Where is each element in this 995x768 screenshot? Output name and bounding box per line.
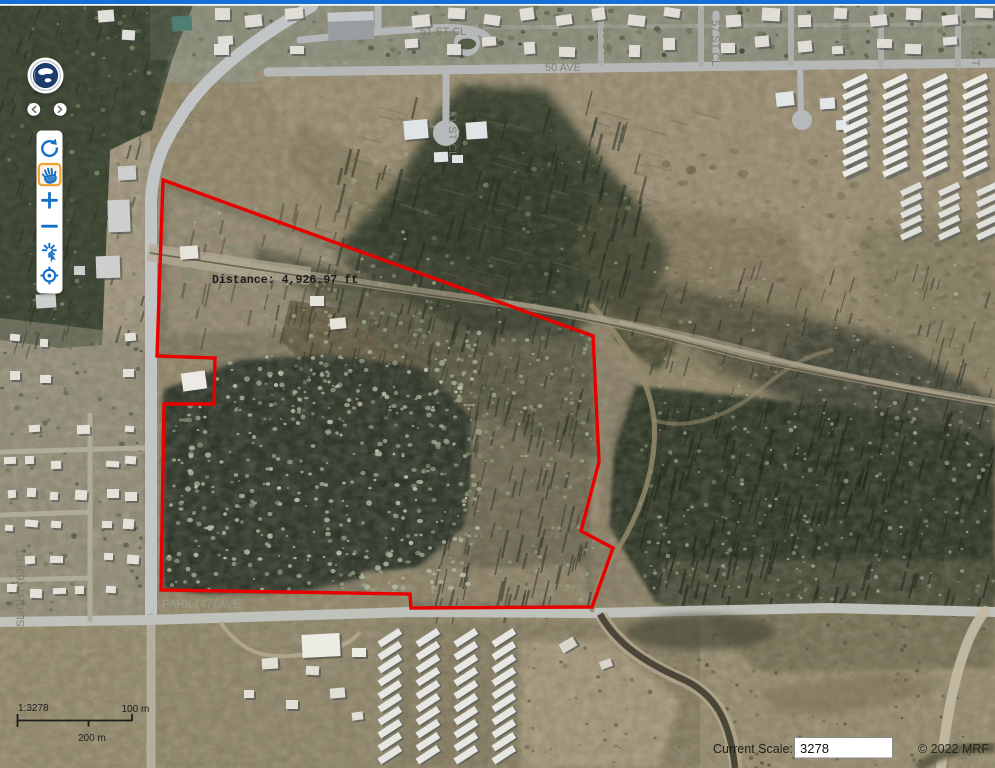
svg-text:51 ST CL: 51 ST CL — [446, 111, 458, 157]
svg-text:© 2022 MRF: © 2022 MRF — [918, 742, 989, 756]
svg-text:PARK (47) AVE: PARK (47) AVE — [162, 599, 241, 611]
svg-text:58 ST: 58 ST — [600, 27, 612, 57]
svg-text:50 AVE: 50 AVE — [545, 62, 581, 74]
svg-text:3278: 3278 — [800, 741, 829, 756]
svg-text:51 ST CL: 51 ST CL — [420, 26, 466, 38]
svg-text:Current Scale:: Current Scale: — [713, 742, 793, 756]
svg-text:100 m: 100 m — [122, 704, 150, 715]
svg-text:56 ST: 56 ST — [838, 18, 850, 48]
svg-text:SLIGHT (63) ST: SLIGHT (63) ST — [15, 547, 27, 627]
svg-text:Distance: 4,926.97 ft: Distance: 4,926.97 ft — [212, 274, 358, 287]
svg-text:57 ST CL: 57 ST CL — [709, 20, 721, 66]
svg-text:55 ST: 55 ST — [969, 37, 981, 67]
svg-text:200 m: 200 m — [78, 733, 106, 744]
svg-text:1:3278: 1:3278 — [18, 703, 49, 714]
svg-text:59 St: 59 St — [441, 712, 453, 738]
